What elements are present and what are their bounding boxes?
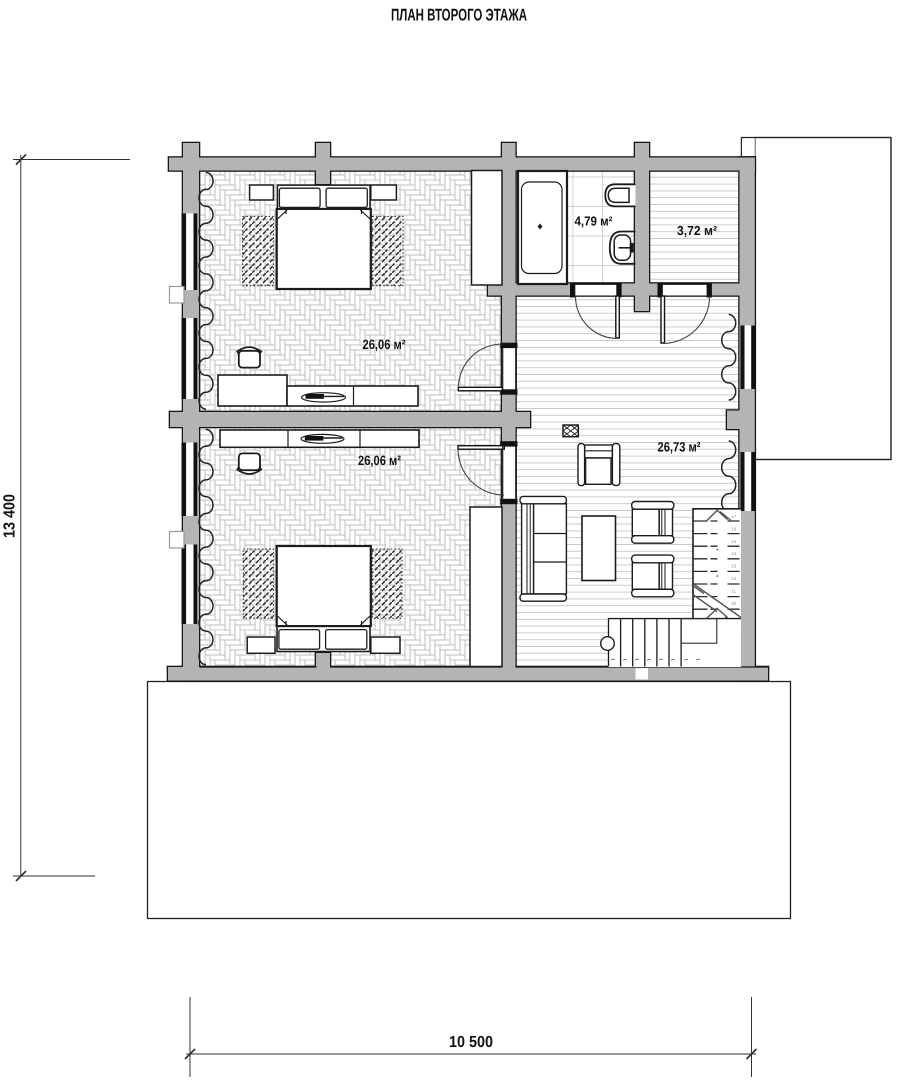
svg-text:ПЛАН ВТОРОГО ЭТАЖА: ПЛАН ВТОРОГО ЭТАЖА xyxy=(391,5,527,24)
svg-text:10 500: 10 500 xyxy=(449,1034,493,1051)
svg-text:10: 10 xyxy=(731,601,736,606)
svg-text:13 400: 13 400 xyxy=(1,494,18,538)
svg-text:17: 17 xyxy=(731,514,736,519)
svg-text:15: 15 xyxy=(731,539,736,544)
svg-text:12: 12 xyxy=(731,576,736,581)
svg-text:14: 14 xyxy=(731,551,736,556)
svg-text:26,06 м²: 26,06 м² xyxy=(358,453,401,468)
svg-text:3,72 м²: 3,72 м² xyxy=(677,223,718,238)
svg-text:26,73 м²: 26,73 м² xyxy=(657,439,700,454)
svg-text:26,06 м²: 26,06 м² xyxy=(362,337,405,352)
svg-text:4,79 м²: 4,79 м² xyxy=(574,213,613,228)
svg-text:16: 16 xyxy=(731,526,736,531)
svg-text:13: 13 xyxy=(731,564,736,569)
svg-text:11: 11 xyxy=(732,588,737,593)
